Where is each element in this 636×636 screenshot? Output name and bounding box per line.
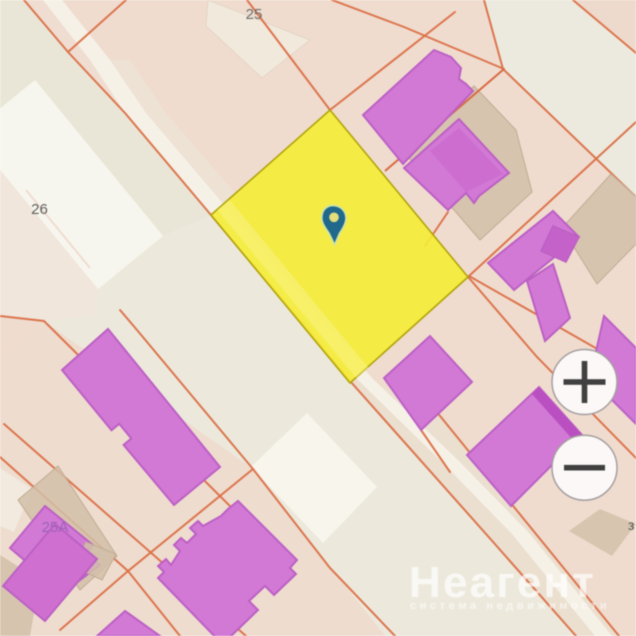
svg-text:з: з xyxy=(628,517,634,533)
svg-text:25: 25 xyxy=(246,6,263,23)
svg-text:система недвижимости: система недвижимости xyxy=(410,600,610,612)
svg-text:26: 26 xyxy=(31,201,48,218)
svg-text:25A: 25A xyxy=(42,519,69,536)
